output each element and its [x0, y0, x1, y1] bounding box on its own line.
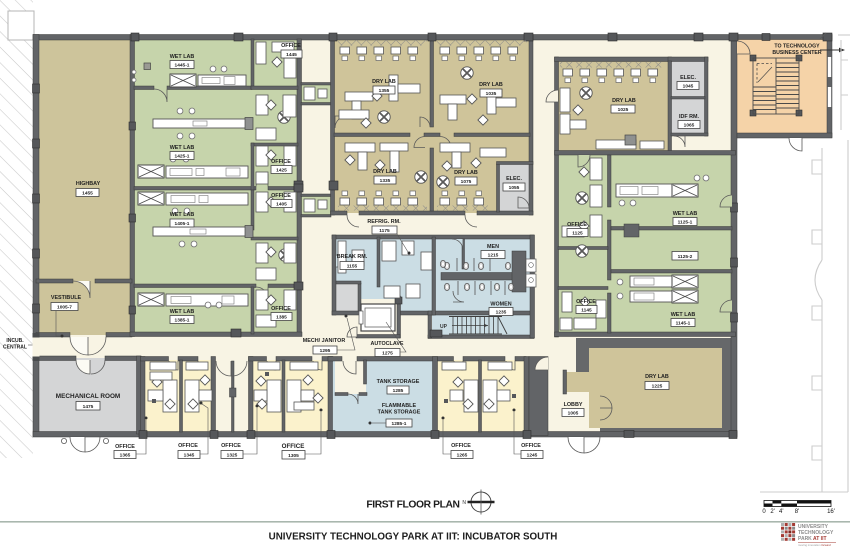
svg-text:1425: 1425 — [276, 168, 287, 174]
svg-text:WET LAB: WET LAB — [673, 211, 698, 217]
svg-text:PARK AT IIT: PARK AT IIT — [798, 536, 827, 542]
svg-text:OFFICE: OFFICE — [178, 443, 198, 449]
svg-text:DRY LAB: DRY LAB — [454, 170, 478, 176]
svg-text:1235: 1235 — [496, 310, 507, 316]
svg-text:1055: 1055 — [509, 185, 520, 191]
svg-text:DRY LAB: DRY LAB — [479, 82, 503, 88]
svg-text:UP: UP — [440, 324, 448, 330]
svg-text:REFRIG. RM.: REFRIG. RM. — [367, 219, 401, 225]
svg-text:1355: 1355 — [379, 88, 390, 94]
svg-text:DRY LAB: DRY LAB — [645, 374, 669, 380]
svg-text:BREAK RM.: BREAK RM. — [337, 254, 368, 260]
svg-text:UNIVERSITY TECHNOLOGY PARK AT: UNIVERSITY TECHNOLOGY PARK AT IIT: INCUB… — [269, 532, 558, 543]
svg-text:MECHANICAL ROOM: MECHANICAL ROOM — [56, 393, 121, 400]
svg-text:LOBBY: LOBBY — [564, 402, 583, 408]
svg-text:1325: 1325 — [227, 453, 238, 459]
svg-text:HIGHBAY: HIGHBAY — [76, 181, 101, 187]
svg-text:OFFICE: OFFICE — [271, 193, 291, 199]
svg-text:DRY LAB: DRY LAB — [372, 79, 396, 85]
svg-text:1125: 1125 — [572, 231, 583, 237]
svg-text:1445: 1445 — [286, 52, 297, 58]
svg-text:8': 8' — [795, 509, 799, 515]
svg-text:BUSINESS CENTER: BUSINESS CENTER — [772, 50, 822, 56]
svg-text:1155: 1155 — [347, 264, 358, 270]
svg-text:WOMEN: WOMEN — [490, 302, 511, 308]
svg-text:1405: 1405 — [276, 202, 287, 208]
svg-text:1075: 1075 — [461, 179, 472, 185]
svg-text:OFFICE: OFFICE — [451, 443, 471, 449]
svg-text:WET LAB: WET LAB — [170, 145, 195, 151]
svg-text:OFFICE: OFFICE — [271, 159, 291, 165]
svg-text:ELEC.: ELEC. — [506, 176, 522, 182]
svg-text:1065: 1065 — [684, 123, 695, 129]
svg-text:ELEC.: ELEC. — [680, 75, 696, 81]
svg-text:1145-1: 1145-1 — [676, 321, 691, 327]
svg-text:1215: 1215 — [488, 253, 499, 259]
svg-text:WET LAB: WET LAB — [170, 54, 195, 60]
svg-text:1125-1: 1125-1 — [678, 220, 693, 226]
svg-text:OFFICE: OFFICE — [271, 306, 291, 312]
svg-text:OFFICE: OFFICE — [521, 443, 541, 449]
svg-text:1175: 1175 — [379, 228, 390, 234]
svg-text:4': 4' — [779, 509, 783, 515]
svg-text:DRY LAB: DRY LAB — [612, 98, 636, 104]
svg-text:1365: 1365 — [120, 453, 131, 459]
svg-text:1455: 1455 — [82, 191, 93, 197]
svg-text:1145: 1145 — [581, 308, 592, 314]
svg-text:MECH/ JANITOR: MECH/ JANITOR — [303, 338, 346, 344]
svg-text:1285-1: 1285-1 — [392, 421, 407, 427]
svg-text:1285: 1285 — [393, 388, 404, 394]
svg-text:OFFICE: OFFICE — [576, 299, 596, 305]
svg-text:1445-1: 1445-1 — [175, 63, 190, 69]
svg-text:1275: 1275 — [382, 351, 393, 357]
svg-text:1225: 1225 — [652, 384, 663, 390]
svg-text:N: N — [462, 500, 466, 506]
svg-text:moving innovation forward: moving innovation forward — [798, 543, 831, 547]
svg-text:DRY LAB: DRY LAB — [373, 169, 397, 175]
svg-text:16': 16' — [827, 509, 835, 515]
svg-text:TANK STORAGE: TANK STORAGE — [377, 379, 420, 385]
svg-text:1425-1: 1425-1 — [175, 154, 190, 160]
svg-text:INCUB.: INCUB. — [6, 338, 24, 344]
svg-text:MEN: MEN — [487, 244, 499, 250]
svg-text:TANK STORAGE: TANK STORAGE — [378, 410, 421, 416]
svg-text:WET LAB: WET LAB — [170, 212, 195, 218]
svg-text:1045: 1045 — [683, 84, 694, 90]
svg-text:1475: 1475 — [83, 404, 94, 410]
svg-text:WET LAB: WET LAB — [170, 309, 195, 315]
svg-text:1405-1: 1405-1 — [175, 221, 190, 227]
svg-text:1305: 1305 — [288, 453, 299, 459]
svg-text:IDF RM.: IDF RM. — [679, 114, 700, 120]
svg-text:1385-1: 1385-1 — [175, 318, 190, 324]
svg-text:OFFICE: OFFICE — [282, 443, 305, 450]
svg-text:TO TECHNOLOGY: TO TECHNOLOGY — [774, 44, 820, 50]
svg-text:OFFICE: OFFICE — [221, 443, 241, 449]
svg-text:1005: 1005 — [568, 411, 579, 417]
svg-text:CENTRAL: CENTRAL — [3, 345, 27, 351]
svg-text:1025: 1025 — [618, 107, 629, 113]
svg-text:1245: 1245 — [527, 453, 538, 459]
svg-text:OFFICE: OFFICE — [115, 444, 135, 450]
svg-text:1005-7: 1005-7 — [57, 305, 72, 311]
svg-text:1035: 1035 — [486, 91, 497, 97]
svg-text:1335: 1335 — [380, 178, 391, 184]
svg-text:FIRST FLOOR PLAN: FIRST FLOOR PLAN — [366, 500, 459, 511]
svg-text:WET LAB: WET LAB — [671, 312, 696, 318]
svg-text:1295: 1295 — [320, 348, 331, 354]
svg-text:1345: 1345 — [184, 453, 195, 459]
svg-text:FLAMMABLE: FLAMMABLE — [382, 403, 417, 409]
svg-text:2': 2' — [770, 509, 774, 515]
svg-text:OFFICE: OFFICE — [567, 222, 587, 228]
svg-text:VESTIBULE: VESTIBULE — [51, 295, 82, 301]
svg-text:1265: 1265 — [457, 453, 468, 459]
svg-text:1125-2: 1125-2 — [678, 254, 693, 260]
svg-text:OFFICE: OFFICE — [281, 43, 301, 49]
svg-text:1385: 1385 — [276, 315, 287, 321]
